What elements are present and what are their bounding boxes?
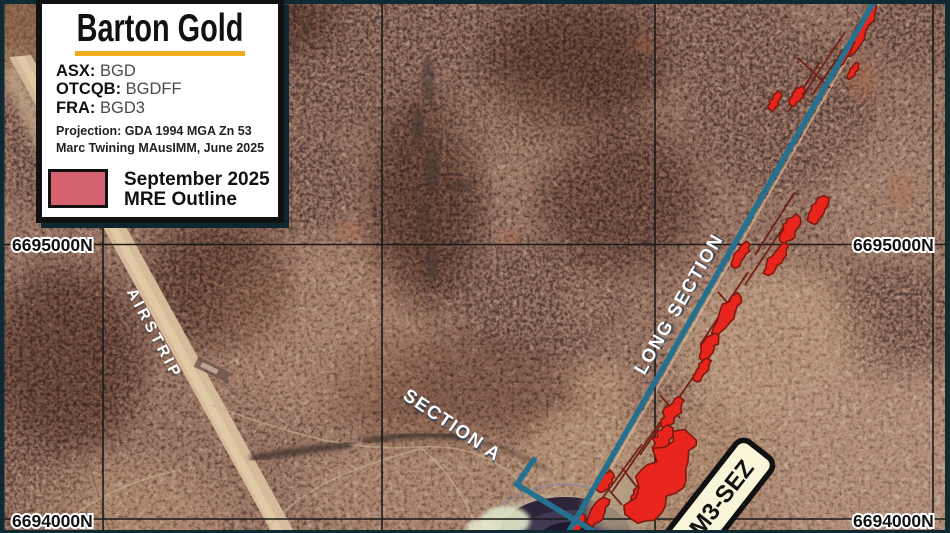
svg-text:6695000N: 6695000N bbox=[853, 235, 934, 255]
svg-text:6695000N: 6695000N bbox=[12, 235, 93, 255]
svg-text:6694000N: 6694000N bbox=[12, 511, 93, 531]
svg-text:6694000N: 6694000N bbox=[853, 511, 934, 531]
